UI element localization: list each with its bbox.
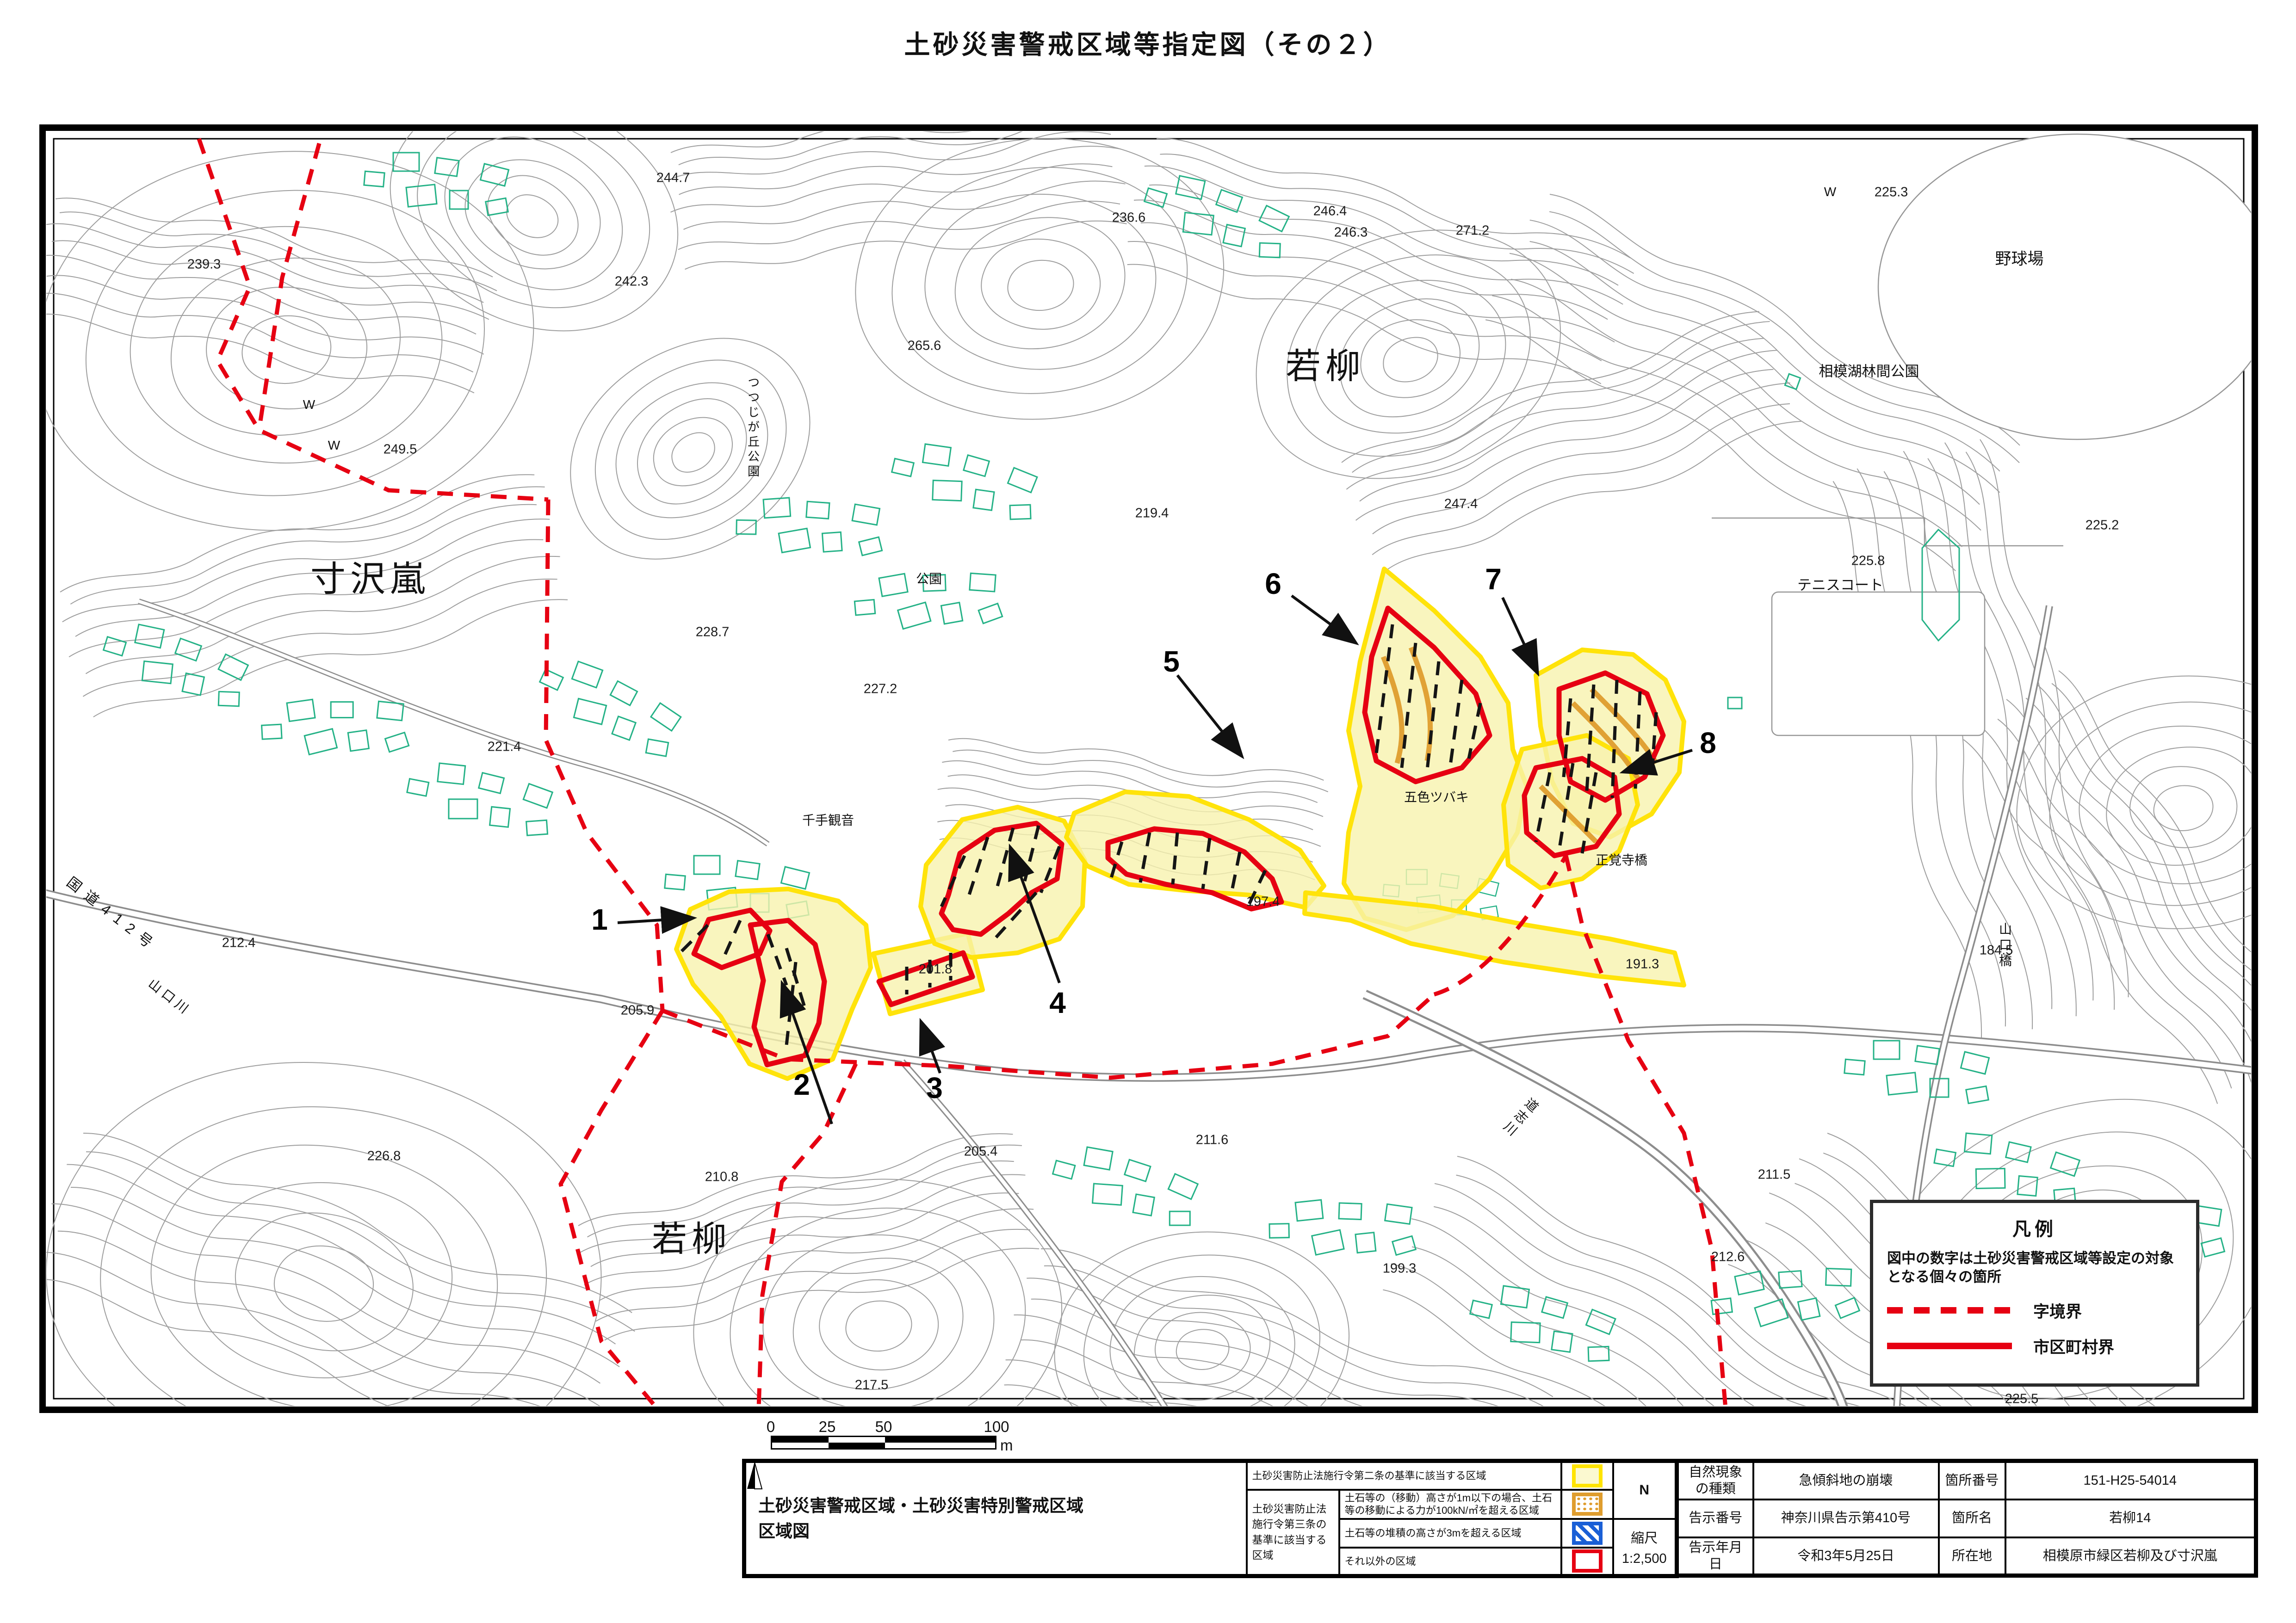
legend-solid-label: 市区町村界 <box>2033 1334 2114 1358</box>
info-value-notice-number: 神奈川県告示第410号 <box>1753 1500 1939 1537</box>
scale-tick-0: 0 <box>767 1418 775 1436</box>
elevation-label: 217.5 <box>855 1378 889 1393</box>
elevation-label: 246.4 <box>1313 204 1347 219</box>
place-label-rinkan-park: 相模湖林間公園 <box>1819 360 1919 381</box>
map-sheet: 土砂災害警戒区域等指定図（その２） <box>0 0 2296 1623</box>
info-label-notice-date: 告示年月日 <box>1677 1537 1753 1576</box>
scale-bar: 0 25 50 100 m <box>771 1418 1030 1450</box>
region-label-wakayanagi-top: 若柳 <box>1286 338 1365 389</box>
map-sheet-title-line2: 区域図 <box>758 1518 1241 1544</box>
elevation-label: 210.8 <box>705 1170 739 1185</box>
scale-unit: m <box>1000 1437 1013 1454</box>
elevation-label: 205.9 <box>621 1003 655 1018</box>
criteria-group-label: 土砂災害防止法施行令第三条の基準に該当する区域 <box>1247 1490 1339 1576</box>
elevation-label: 228.7 <box>696 625 730 640</box>
arrow-to-site-6 <box>1292 596 1355 642</box>
elevation-label: 219.4 <box>1135 506 1169 521</box>
baseball-field-outline <box>1878 134 2276 439</box>
well-mark-1: W <box>303 397 315 412</box>
scale-value: 1:2,500 <box>1619 1551 1671 1567</box>
elevation-label: 212.6 <box>1711 1250 1745 1265</box>
elevation-label: 239.3 <box>187 257 221 272</box>
legend-title: 凡例 <box>1887 1214 2182 1241</box>
tennis-court-outline <box>1772 592 1985 735</box>
elevation-label: 226.8 <box>367 1149 401 1164</box>
place-label-goshiki-tsubaki: 五色ツバキ <box>1404 787 1469 806</box>
arrow-to-site-5 <box>1177 675 1241 755</box>
well-mark-2: W <box>328 438 340 453</box>
site-info-table: 自然現象の種類 急傾斜地の崩壊 箇所番号 151-H25-54014 告示番号 … <box>1675 1459 2258 1578</box>
criteria-table: 土砂災害警戒区域・土砂災害特別警戒区域 区域図 土砂災害防止法施行令第二条の基準… <box>742 1459 1679 1578</box>
elevation-label: 249.5 <box>384 442 417 457</box>
info-label-notice-number: 告示番号 <box>1677 1500 1753 1537</box>
map-sheet-title-line1: 土砂災害警戒区域・土砂災害特別警戒区域 <box>758 1493 1241 1519</box>
legend-dashed-line-sample <box>1887 1307 2012 1314</box>
criteria-row1: 土砂災害防止法施行令第二条の基準に該当する区域 <box>1247 1461 1561 1490</box>
site-number-8: 8 <box>1700 726 1716 760</box>
info-label-phenomenon: 自然現象の種類 <box>1677 1461 1753 1500</box>
elevation-label: 244.7 <box>656 171 690 186</box>
swatch-cell-orange <box>1561 1490 1613 1519</box>
elevation-label: 271.2 <box>1456 223 1490 239</box>
elevation-label: 199.3 <box>1383 1261 1417 1277</box>
place-label-tennis-court: テニスコート <box>1797 574 1883 594</box>
place-label-shogakuji-bridge: 正覚寺橋 <box>1596 850 1647 869</box>
elevation-label: 227.2 <box>864 682 897 697</box>
yellow-zone-swatch <box>1572 1464 1603 1487</box>
elevation-label: 225.8 <box>1851 554 1885 569</box>
elevation-label: 247.4 <box>1444 497 1478 512</box>
scale-tick-50: 50 <box>875 1418 892 1436</box>
site-number-3: 3 <box>926 1071 943 1105</box>
swatch-cell-yellow <box>1561 1461 1613 1490</box>
place-label-senju-kannon: 千手観音 <box>802 810 854 829</box>
orange-zone-swatch <box>1572 1493 1603 1516</box>
blue-zone-swatch <box>1572 1522 1603 1545</box>
north-label: N <box>1619 1482 1671 1498</box>
info-value-site-number: 151-H25-54014 <box>2005 1461 2256 1500</box>
site-number-1: 1 <box>591 902 608 937</box>
elevation-label: 225.5 <box>2005 1392 2039 1407</box>
swatch-cell-blue <box>1561 1519 1613 1548</box>
place-label-baseball-field: 野球場 <box>1995 246 2043 270</box>
well-mark-3: W <box>1824 185 1836 199</box>
info-value-notice-date: 令和3年5月25日 <box>1753 1537 1939 1576</box>
info-value-phenomenon: 急傾斜地の崩壊 <box>1753 1461 1939 1500</box>
elevation-label: 191.3 <box>1626 957 1659 972</box>
elevation-label: 225.2 <box>2086 518 2119 533</box>
site-number-4: 4 <box>1049 986 1066 1020</box>
legend-solid-line-sample <box>1887 1343 2012 1349</box>
legend-dashed-label: 字境界 <box>2033 1299 2082 1322</box>
elevation-label: 236.6 <box>1112 210 1146 226</box>
elevation-label: 246.3 <box>1334 225 1368 241</box>
criteria-sub1: 土石等の（移動）高さが1m以下の場合、土石等の移動による力が100kN/㎡を超え… <box>1339 1490 1561 1519</box>
red-zone-swatch <box>1572 1549 1603 1573</box>
elevation-label: 197.4 <box>1246 895 1280 910</box>
elevation-label: 221.4 <box>488 740 521 755</box>
legend-box: 凡例 図中の数字は土砂災害警戒区域等設定の対象となる個々の箇所 字境界 市区町村… <box>1870 1200 2199 1387</box>
info-value-location: 相模原市緑区若柳及び寸沢嵐 <box>2005 1537 2256 1576</box>
site-number-5: 5 <box>1163 644 1180 679</box>
info-value-site-name: 若柳14 <box>2005 1500 2256 1537</box>
swatch-cell-red <box>1561 1548 1613 1576</box>
site-number-6: 6 <box>1265 567 1281 601</box>
info-label-location: 所在地 <box>1939 1537 2005 1576</box>
scale-tick-25: 25 <box>819 1418 836 1436</box>
scale-cell: 縮尺 1:2,500 <box>1613 1519 1677 1576</box>
elevation-label: 201.8 <box>919 962 953 977</box>
elevation-label: 211.6 <box>1196 1133 1228 1148</box>
north-cell: N <box>1613 1461 1677 1519</box>
place-label-tsutsujigaoka-park: つつじが丘公園 <box>745 376 762 480</box>
scale-tick-100: 100 <box>984 1418 1009 1436</box>
place-label-park: 公園 <box>916 569 942 587</box>
elevation-label: 211.5 <box>1758 1167 1790 1183</box>
elevation-label: 184.5 <box>1980 943 2013 958</box>
scale-label: 縮尺 <box>1619 1527 1671 1547</box>
region-label-wakayanagi-bottom: 若柳 <box>652 1210 731 1261</box>
elevation-label: 205.4 <box>964 1144 998 1160</box>
arrow-to-site-1 <box>618 918 692 923</box>
park-features <box>1712 134 2276 735</box>
criteria-sub2: 土石等の堆積の高さが3mを超える区域 <box>1339 1519 1561 1548</box>
site-number-2: 2 <box>793 1068 810 1102</box>
info-label-site-name: 箇所名 <box>1939 1500 2005 1537</box>
elevation-label: 225.3 <box>1875 185 1908 200</box>
elevation-label: 265.6 <box>908 339 941 354</box>
map-sheet-title-cell: 土砂災害警戒区域・土砂災害特別警戒区域 区域図 <box>744 1461 1247 1576</box>
elevation-label: 242.3 <box>615 274 649 290</box>
scale-bar-graphic <box>771 1436 996 1450</box>
arrow-to-site-7 <box>1503 598 1537 672</box>
elevation-label: 212.4 <box>222 936 256 951</box>
info-label-site-number: 箇所番号 <box>1939 1461 2005 1500</box>
site-number-7: 7 <box>1485 562 1502 596</box>
legend-note: 図中の数字は土砂災害警戒区域等設定の対象となる個々の箇所 <box>1887 1249 2182 1287</box>
north-arrow-icon <box>744 1461 765 1491</box>
region-label-sunzawarashi: 寸沢嵐 <box>310 550 430 601</box>
criteria-sub3: それ以外の区域 <box>1339 1548 1561 1576</box>
